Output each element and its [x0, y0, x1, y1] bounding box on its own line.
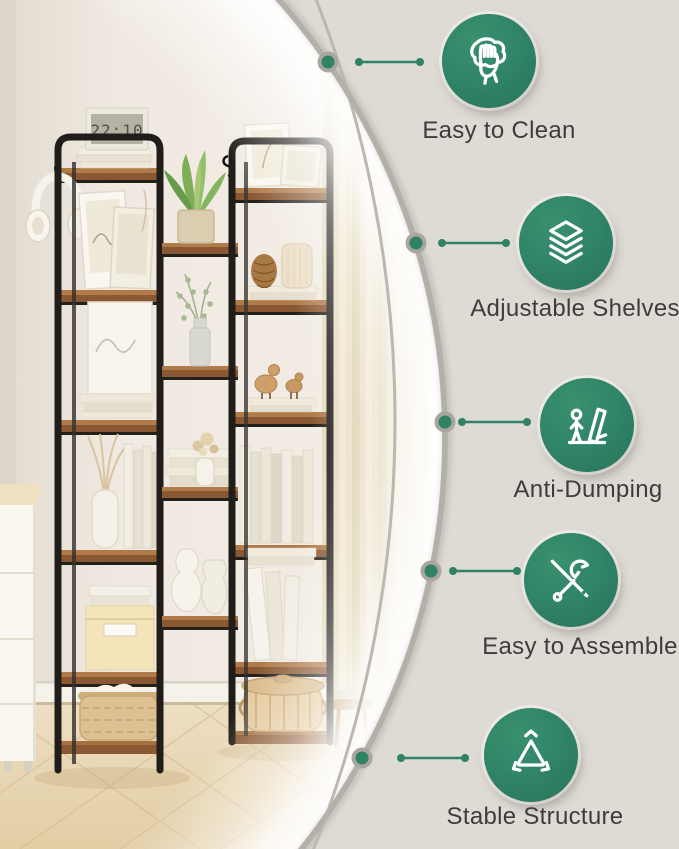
wipe-clean-icon: [461, 33, 517, 89]
arc-dot-4: [423, 563, 440, 580]
crossed-tools-icon: [543, 552, 599, 608]
feature-label: Anti-Dumping: [514, 476, 663, 504]
arc-dot-1: [320, 54, 337, 71]
arc-dot-2: [408, 235, 425, 252]
feature-icon-bubble: [519, 196, 613, 290]
arc-dot-5: [354, 750, 371, 767]
stacked-layers-icon: [538, 215, 594, 271]
feature-icon-bubble: [484, 708, 578, 802]
product-feature-image: 22:10: [0, 0, 679, 849]
feature-label: Stable Structure: [447, 803, 624, 831]
feature-icon-bubble: [442, 14, 536, 108]
stable-triangle-icon: [503, 727, 559, 783]
feature-label: Easy to Assemble: [482, 633, 678, 661]
feature-icon-bubble: [524, 533, 618, 627]
anti-tip-icon: [559, 397, 615, 453]
feature-label: Easy to Clean: [422, 117, 575, 145]
arc-dot-3: [437, 414, 454, 431]
feature-label: Adjustable Shelves: [470, 295, 679, 323]
feature-icon-bubble: [540, 378, 634, 472]
